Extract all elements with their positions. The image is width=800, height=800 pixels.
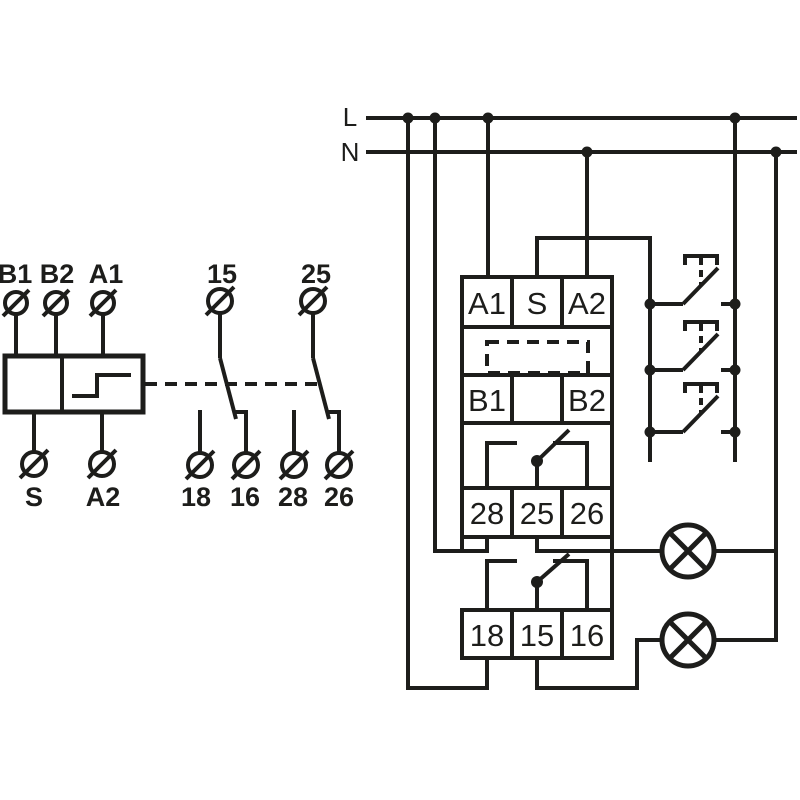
terminal-circle-a1	[90, 290, 116, 316]
push-button-3	[645, 384, 741, 438]
contact1-moving-arm	[537, 430, 569, 461]
lamp2-cross	[670, 622, 706, 658]
internal-link-dashed-box	[487, 342, 588, 373]
junction-dot	[730, 299, 741, 310]
neutral-label: N	[341, 137, 360, 167]
push-button-1	[645, 256, 741, 310]
terminal-label-b1: B1	[0, 259, 32, 289]
lamp-1	[662, 525, 714, 577]
device-block: A1 S A2 B1 B2 28 25 26	[462, 277, 612, 658]
contact1-fixed-26	[553, 443, 587, 488]
device-label-15: 15	[520, 618, 554, 653]
terminal-circle-18	[186, 451, 214, 479]
contact2-right-label: 26	[324, 482, 354, 512]
terminal-circle-b2	[43, 290, 69, 316]
device-contact1-symbol	[487, 430, 587, 488]
terminal-circle-26	[325, 451, 353, 479]
terminal-label-a2: A2	[86, 482, 121, 512]
relay-body-box	[5, 356, 143, 412]
contact1-top-label: 15	[207, 259, 237, 289]
line-label: L	[343, 102, 357, 132]
terminal-circle-16	[232, 451, 260, 479]
device-label-a1: A1	[468, 286, 506, 321]
contact2-left-label: 28	[278, 482, 308, 512]
device-label-16: 16	[570, 618, 604, 653]
terminal-circle-b1	[3, 290, 29, 316]
device-label-26: 26	[570, 496, 604, 531]
lamp-2	[662, 614, 714, 666]
terminal-circle-25	[299, 287, 327, 315]
step-function-icon	[72, 375, 131, 396]
wire-s-to-button-rail	[537, 238, 650, 462]
terminal-circle-15	[206, 287, 234, 315]
device-label-s: S	[527, 286, 548, 321]
terminal-label-a1: A1	[89, 259, 124, 289]
device-label-a2: A2	[568, 286, 606, 321]
junction-dot	[645, 427, 656, 438]
terminal-label-b2: B2	[40, 259, 75, 289]
contact2-top-label: 25	[301, 259, 331, 289]
device-label-28: 28	[470, 496, 504, 531]
terminal-label-s: S	[25, 482, 43, 512]
contact1-left-label: 18	[181, 482, 211, 512]
junction-dot	[730, 427, 741, 438]
contact2-fixed-18	[487, 561, 517, 610]
junction-dot	[645, 365, 656, 376]
contact1-right-label: 16	[230, 482, 260, 512]
junction-dot	[645, 299, 656, 310]
diagram-canvas: B1 B2 A1 S A2 15	[0, 0, 800, 800]
contact2-moving-arm	[537, 554, 569, 582]
contact1-arm	[220, 358, 236, 419]
junction-dot	[730, 365, 741, 376]
contact2-fixed-16	[553, 561, 587, 610]
device-label-b2: B2	[568, 383, 606, 418]
wire-terminal25-to-lamp1	[537, 537, 662, 551]
push-button-2	[645, 322, 741, 376]
terminal-circle-28	[280, 451, 308, 479]
lamp1-cross	[670, 533, 706, 569]
relay-symbol-block: B1 B2 A1 S A2	[0, 259, 318, 512]
device-label-25: 25	[520, 496, 554, 531]
wire-n-drop-to-lamp2	[714, 152, 776, 640]
device-cell-mid	[512, 375, 562, 423]
device-label-18: 18	[470, 618, 504, 653]
wiring-diagram: B1 B2 A1 S A2 15	[0, 0, 800, 800]
contact2-arm	[313, 358, 329, 419]
terminal-circle-a2	[88, 450, 116, 478]
contact1-fixed-28	[487, 443, 517, 488]
device-contact2-symbol	[487, 554, 587, 610]
terminal-circle-s	[20, 450, 48, 478]
device-label-b1: B1	[468, 383, 506, 418]
